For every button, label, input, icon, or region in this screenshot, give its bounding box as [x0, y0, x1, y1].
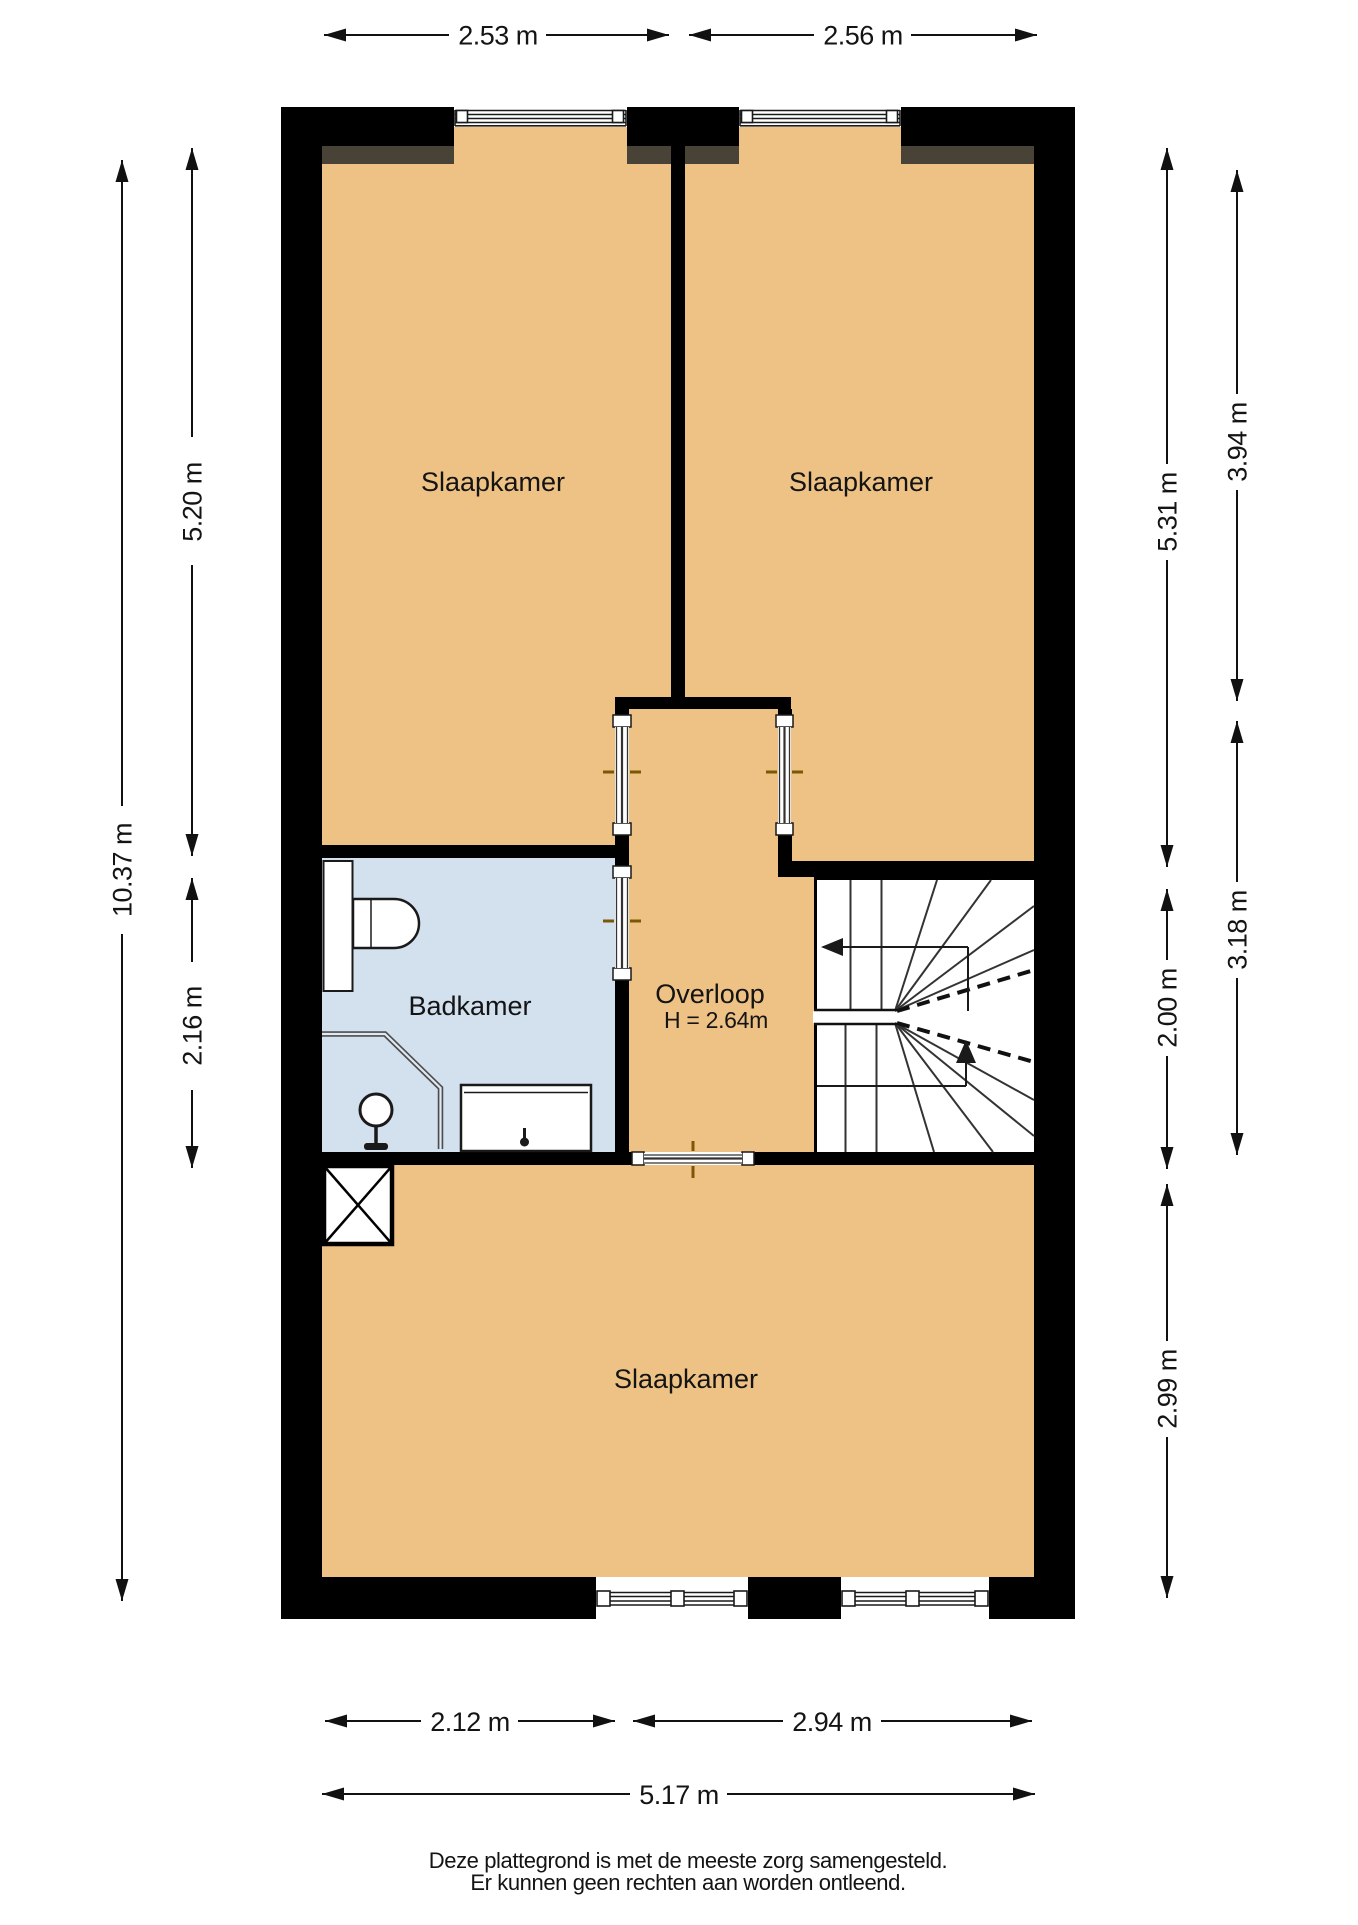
svg-text:2.00 m: 2.00 m — [1153, 968, 1183, 1048]
svg-text:2.12 m: 2.12 m — [430, 1707, 510, 1737]
svg-text:2.99 m: 2.99 m — [1153, 1349, 1183, 1429]
svg-text:Badkamer: Badkamer — [408, 991, 531, 1021]
svg-text:5.20 m: 5.20 m — [178, 462, 208, 542]
svg-text:Slaapkamer: Slaapkamer — [421, 467, 565, 497]
svg-text:2.94 m: 2.94 m — [792, 1707, 872, 1737]
svg-text:3.18 m: 3.18 m — [1223, 890, 1253, 970]
svg-text:2.56 m: 2.56 m — [823, 21, 903, 51]
svg-text:2.16 m: 2.16 m — [178, 986, 208, 1066]
svg-text:3.94 m: 3.94 m — [1223, 402, 1253, 482]
svg-text:5.17 m: 5.17 m — [639, 1780, 719, 1810]
svg-text:2.53 m: 2.53 m — [458, 21, 538, 51]
svg-text:10.37 m: 10.37 m — [108, 823, 138, 917]
svg-text:Overloop: Overloop — [655, 979, 765, 1009]
svg-text:Er kunnen geen rechten aan wor: Er kunnen geen rechten aan worden ontlee… — [470, 1870, 905, 1895]
svg-text:H = 2.64m: H = 2.64m — [664, 1007, 768, 1033]
svg-text:Slaapkamer: Slaapkamer — [789, 467, 933, 497]
svg-text:Slaapkamer: Slaapkamer — [614, 1364, 758, 1394]
svg-text:5.31 m: 5.31 m — [1153, 472, 1183, 552]
